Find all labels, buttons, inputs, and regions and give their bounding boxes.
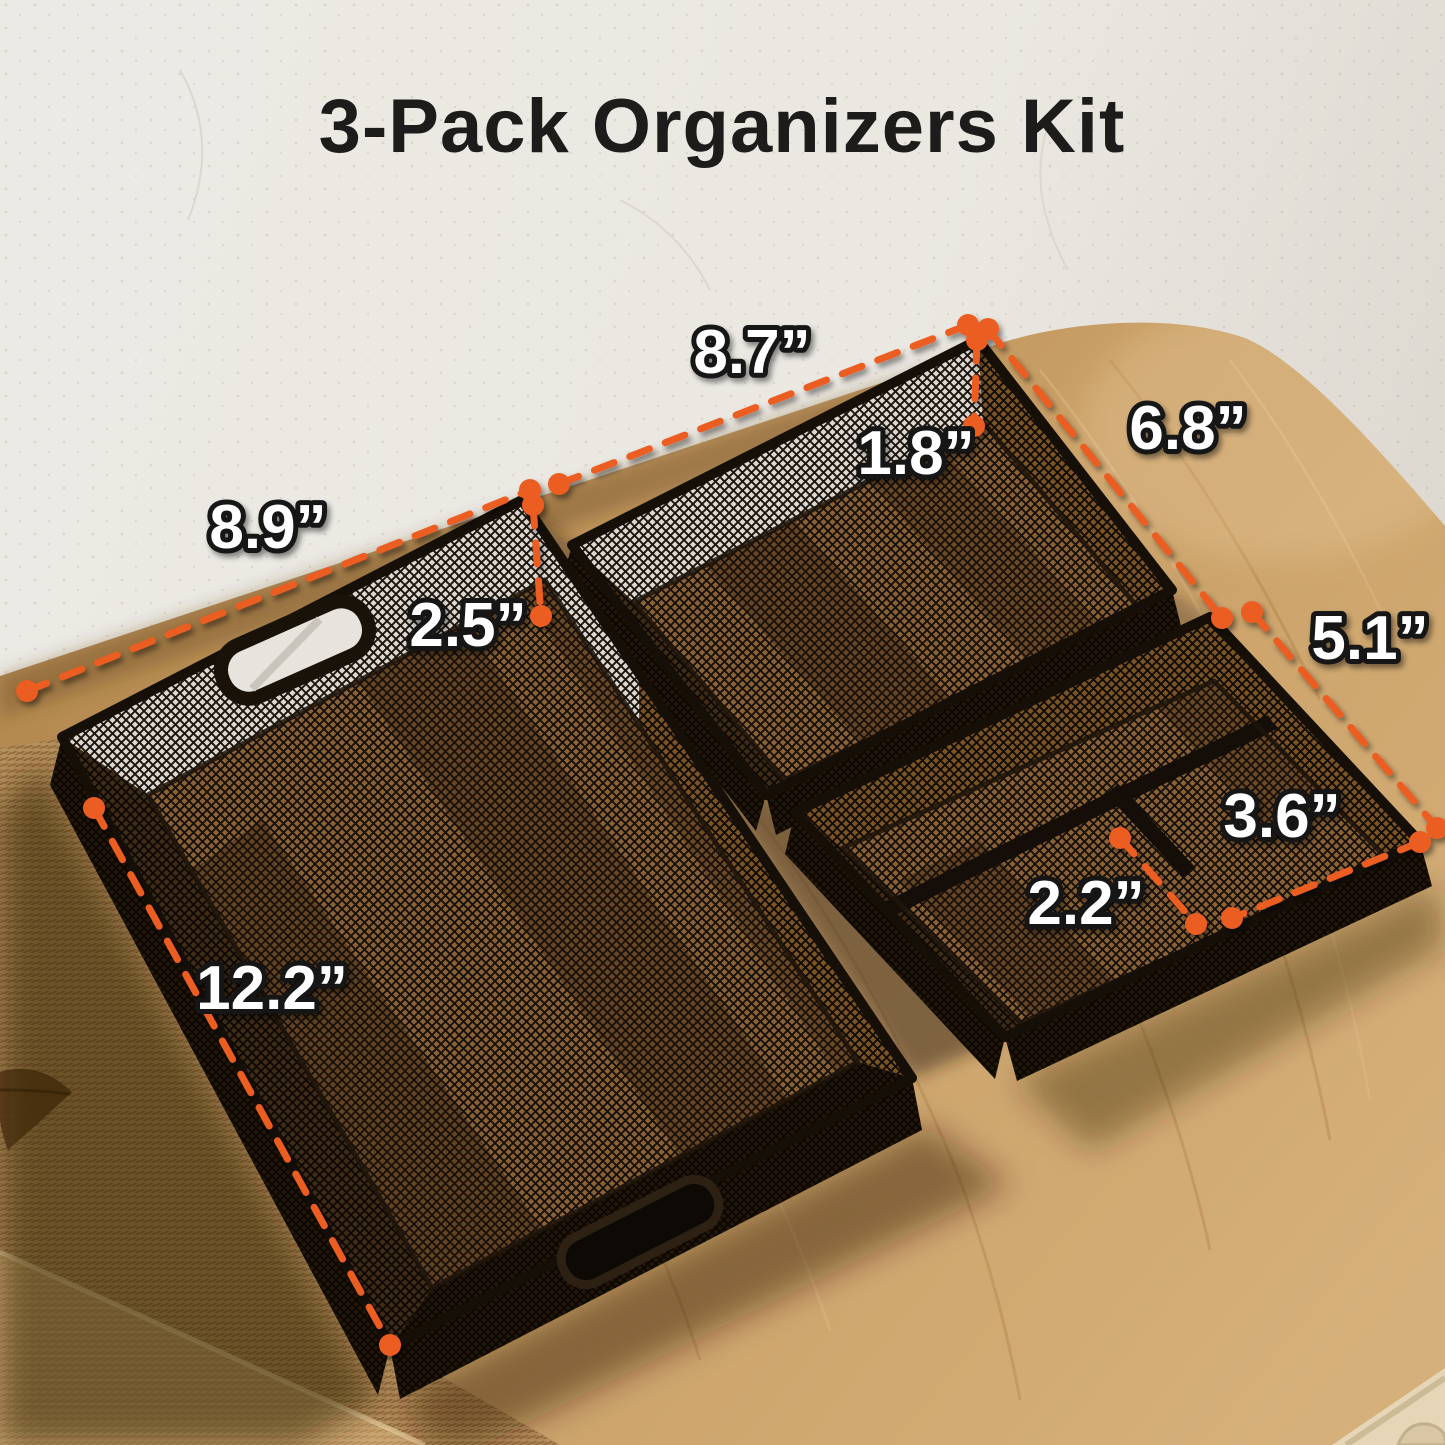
dimension-label: 6.8” bbox=[1129, 394, 1246, 463]
dimension-label: 2.5” bbox=[409, 591, 526, 660]
organizers-kit-image: 8.9” 2.5” 12.2” 8.7” 1.8” bbox=[0, 0, 1445, 1445]
dimension-dot bbox=[1185, 913, 1207, 935]
dimension-label: 8.9” bbox=[209, 493, 326, 562]
dimension-dot bbox=[1221, 907, 1243, 929]
dimension-dot bbox=[1109, 827, 1131, 849]
dimension-label: 5.1” bbox=[1311, 604, 1428, 673]
dimension-dot bbox=[16, 680, 38, 702]
dimension-dot bbox=[530, 605, 552, 627]
dimension-label: 2.2” bbox=[1027, 869, 1144, 938]
dimension-dot bbox=[977, 318, 999, 340]
dimension-label: 12.2” bbox=[196, 954, 348, 1023]
dimension-label: 3.6” bbox=[1223, 782, 1340, 851]
dimension-dot bbox=[379, 1334, 401, 1356]
dimension-label: 8.7” bbox=[693, 318, 810, 387]
dimension-dot bbox=[1211, 607, 1233, 629]
dimension-label: 1.8” bbox=[857, 419, 974, 488]
product-photo: 8.9” 2.5” 12.2” 8.7” 1.8” bbox=[0, 0, 1445, 1445]
dimension-dot bbox=[548, 473, 570, 495]
dimension-dot bbox=[83, 797, 105, 819]
dimension-dot bbox=[1241, 601, 1263, 623]
page-title: 3-Pack Organizers Kit bbox=[319, 84, 1126, 169]
dimension-dot bbox=[1409, 831, 1431, 853]
dimension-dot bbox=[522, 494, 544, 516]
